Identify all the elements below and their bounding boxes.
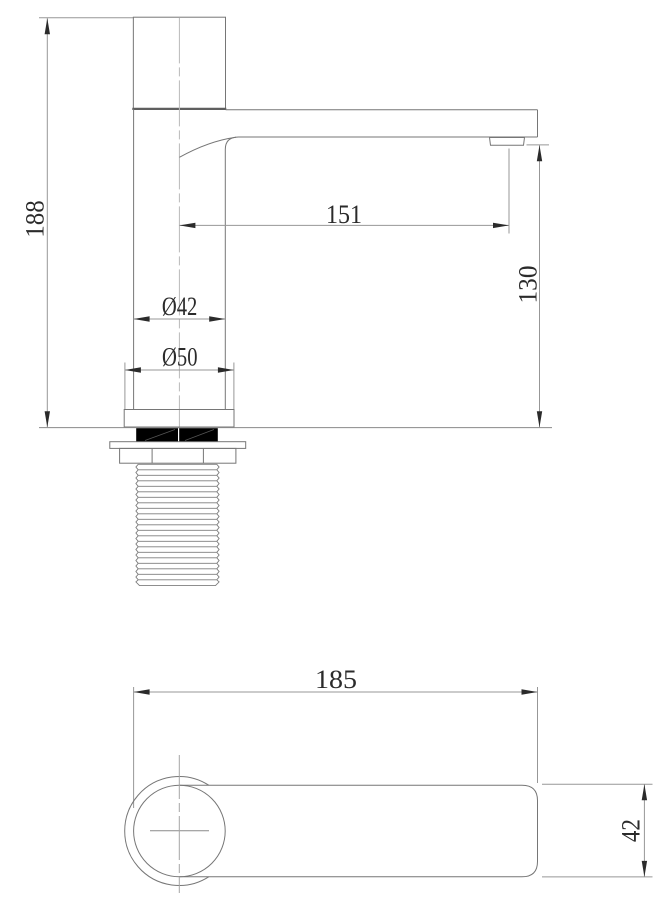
- svg-text:185: 185: [315, 665, 357, 694]
- svg-text:151: 151: [326, 200, 362, 229]
- svg-text:42: 42: [617, 819, 646, 842]
- svg-text:130: 130: [514, 266, 543, 304]
- svg-text:Ø42: Ø42: [162, 292, 198, 321]
- svg-text:Ø50: Ø50: [162, 343, 198, 372]
- svg-text:188: 188: [21, 200, 50, 238]
